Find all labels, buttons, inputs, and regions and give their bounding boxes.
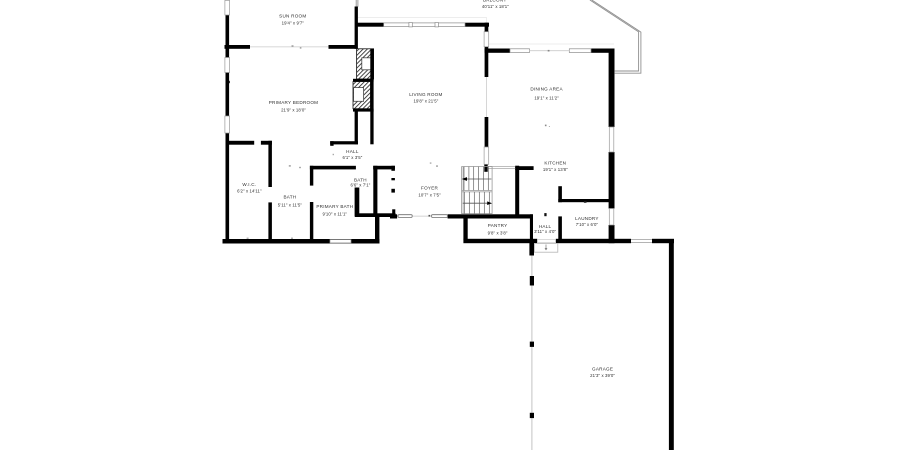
- svg-text:9'10" x 11'1": 9'10" x 11'1": [323, 211, 348, 216]
- svg-text:19'4" x 9'7": 19'4" x 9'7": [282, 21, 305, 26]
- svg-text:LAUNDRY: LAUNDRY: [575, 216, 599, 221]
- svg-text:LIVING ROOM: LIVING ROOM: [409, 92, 442, 97]
- svg-text:19'1" x 13'8": 19'1" x 13'8": [543, 167, 568, 172]
- svg-text:9'8" x 3'8": 9'8" x 3'8": [488, 230, 508, 235]
- svg-text:6'6" x 7'1": 6'6" x 7'1": [350, 183, 370, 188]
- svg-text:40'11" x 18'1": 40'11" x 18'1": [482, 4, 509, 9]
- svg-text:PRIMARY BEDROOM: PRIMARY BEDROOM: [269, 100, 319, 105]
- svg-text:19'8" x 21'5": 19'8" x 21'5": [413, 99, 438, 104]
- svg-text:3'11" x 4'0": 3'11" x 4'0": [534, 229, 556, 234]
- svg-text:6'1" x 3'5": 6'1" x 3'5": [342, 155, 362, 160]
- svg-text:FOYER: FOYER: [421, 186, 439, 191]
- svg-text:GARAGE: GARAGE: [592, 367, 613, 372]
- svg-text:HALL: HALL: [346, 149, 359, 154]
- svg-text:21'3" x 39'0": 21'3" x 39'0": [590, 373, 615, 378]
- svg-text:19'1" x 11'2": 19'1" x 11'2": [534, 96, 559, 101]
- svg-text:10'7" x 7'5": 10'7" x 7'5": [418, 193, 441, 198]
- svg-text:5'11" x 11'5": 5'11" x 11'5": [278, 202, 303, 207]
- svg-text:BATH: BATH: [354, 177, 367, 182]
- svg-text:7'10" x 6'0": 7'10" x 6'0": [576, 222, 599, 227]
- svg-text:SUN ROOM: SUN ROOM: [279, 14, 306, 19]
- svg-text:DINING AREA: DINING AREA: [530, 87, 563, 92]
- svg-text:PANTRY: PANTRY: [488, 223, 508, 228]
- svg-text:21'9" x 18'0": 21'9" x 18'0": [281, 107, 306, 112]
- svg-text:HALL: HALL: [539, 224, 552, 229]
- svg-text:BALCONY: BALCONY: [483, 0, 507, 3]
- svg-text:6'2" x 14'11": 6'2" x 14'11": [237, 189, 262, 194]
- svg-text:KITCHEN: KITCHEN: [544, 161, 566, 166]
- svg-text:PRIMARY BATH: PRIMARY BATH: [316, 204, 353, 209]
- svg-text:BATH: BATH: [283, 195, 296, 200]
- svg-text:W.I.C.: W.I.C.: [242, 182, 256, 187]
